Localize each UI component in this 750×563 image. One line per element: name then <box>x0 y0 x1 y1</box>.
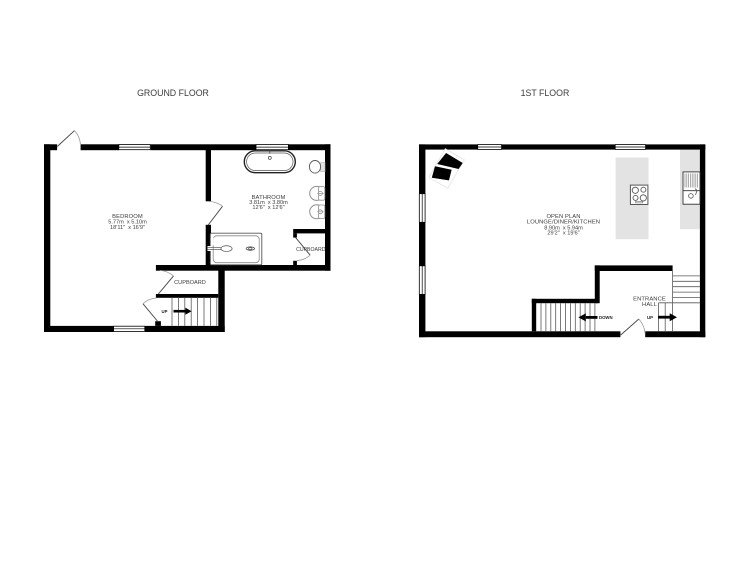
svg-text:29'2" x 19'6": 29'2" x 19'6" <box>547 231 579 237</box>
svg-text:GROUND FLOOR: GROUND FLOOR <box>137 88 209 98</box>
svg-text:UP: UP <box>162 309 168 314</box>
svg-text:DOWN: DOWN <box>599 315 613 320</box>
svg-text:18'11" x 16'9": 18'11" x 16'9" <box>110 225 145 231</box>
svg-text:12'6" x 12'6": 12'6" x 12'6" <box>252 205 284 211</box>
svg-text:CUPBOARD: CUPBOARD <box>296 247 326 253</box>
svg-text:UP: UP <box>647 315 653 320</box>
svg-text:1ST FLOOR: 1ST FLOOR <box>521 88 570 98</box>
svg-text:HALL: HALL <box>642 302 658 308</box>
svg-text:CUPBOARD: CUPBOARD <box>174 280 206 286</box>
